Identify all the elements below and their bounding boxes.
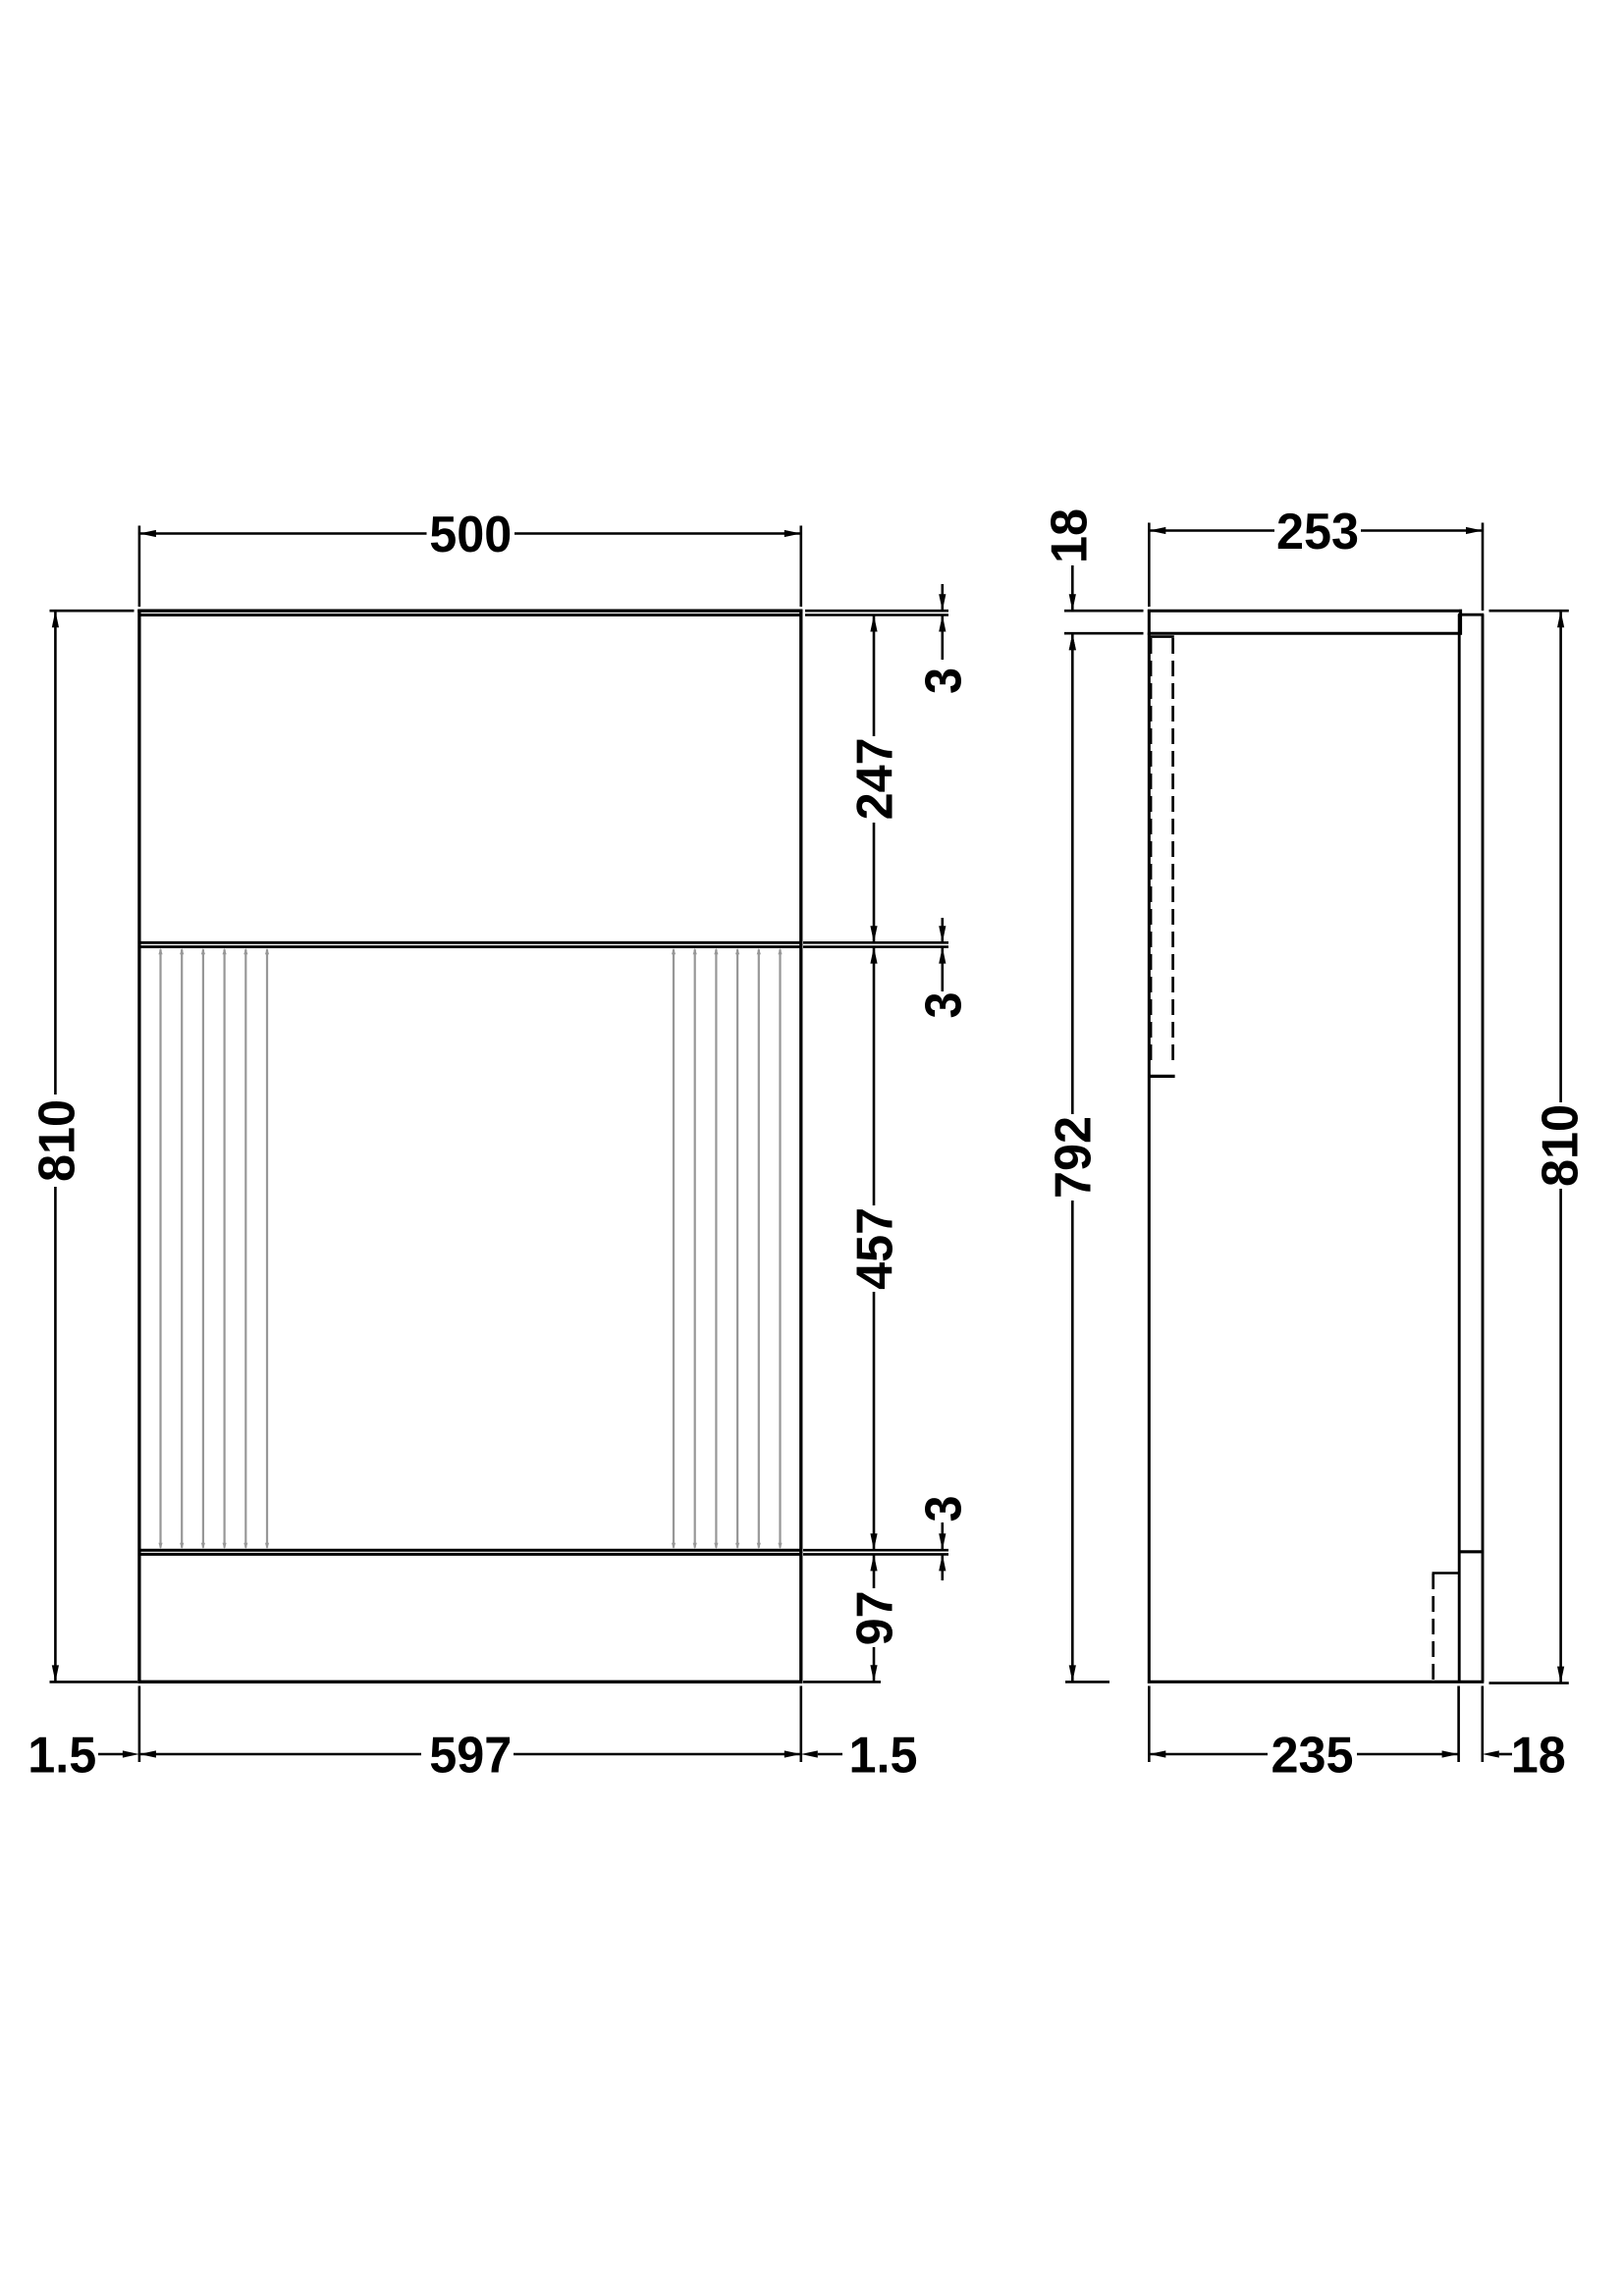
svg-text:3: 3 [916,1496,973,1522]
svg-text:810: 810 [1533,1104,1590,1187]
svg-text:597: 597 [429,1728,512,1785]
svg-text:810: 810 [29,1099,86,1182]
svg-text:97: 97 [847,1590,904,1645]
svg-text:235: 235 [1271,1728,1354,1785]
svg-text:1.5: 1.5 [849,1728,918,1785]
svg-text:500: 500 [429,507,512,563]
svg-text:457: 457 [847,1207,904,1290]
svg-text:253: 253 [1276,504,1359,561]
svg-text:18: 18 [1041,508,1098,563]
svg-text:247: 247 [847,737,904,820]
svg-text:3: 3 [916,667,973,694]
svg-text:792: 792 [1046,1116,1103,1199]
svg-text:1.5: 1.5 [27,1728,96,1785]
svg-text:3: 3 [916,992,973,1019]
svg-text:18: 18 [1511,1728,1566,1785]
